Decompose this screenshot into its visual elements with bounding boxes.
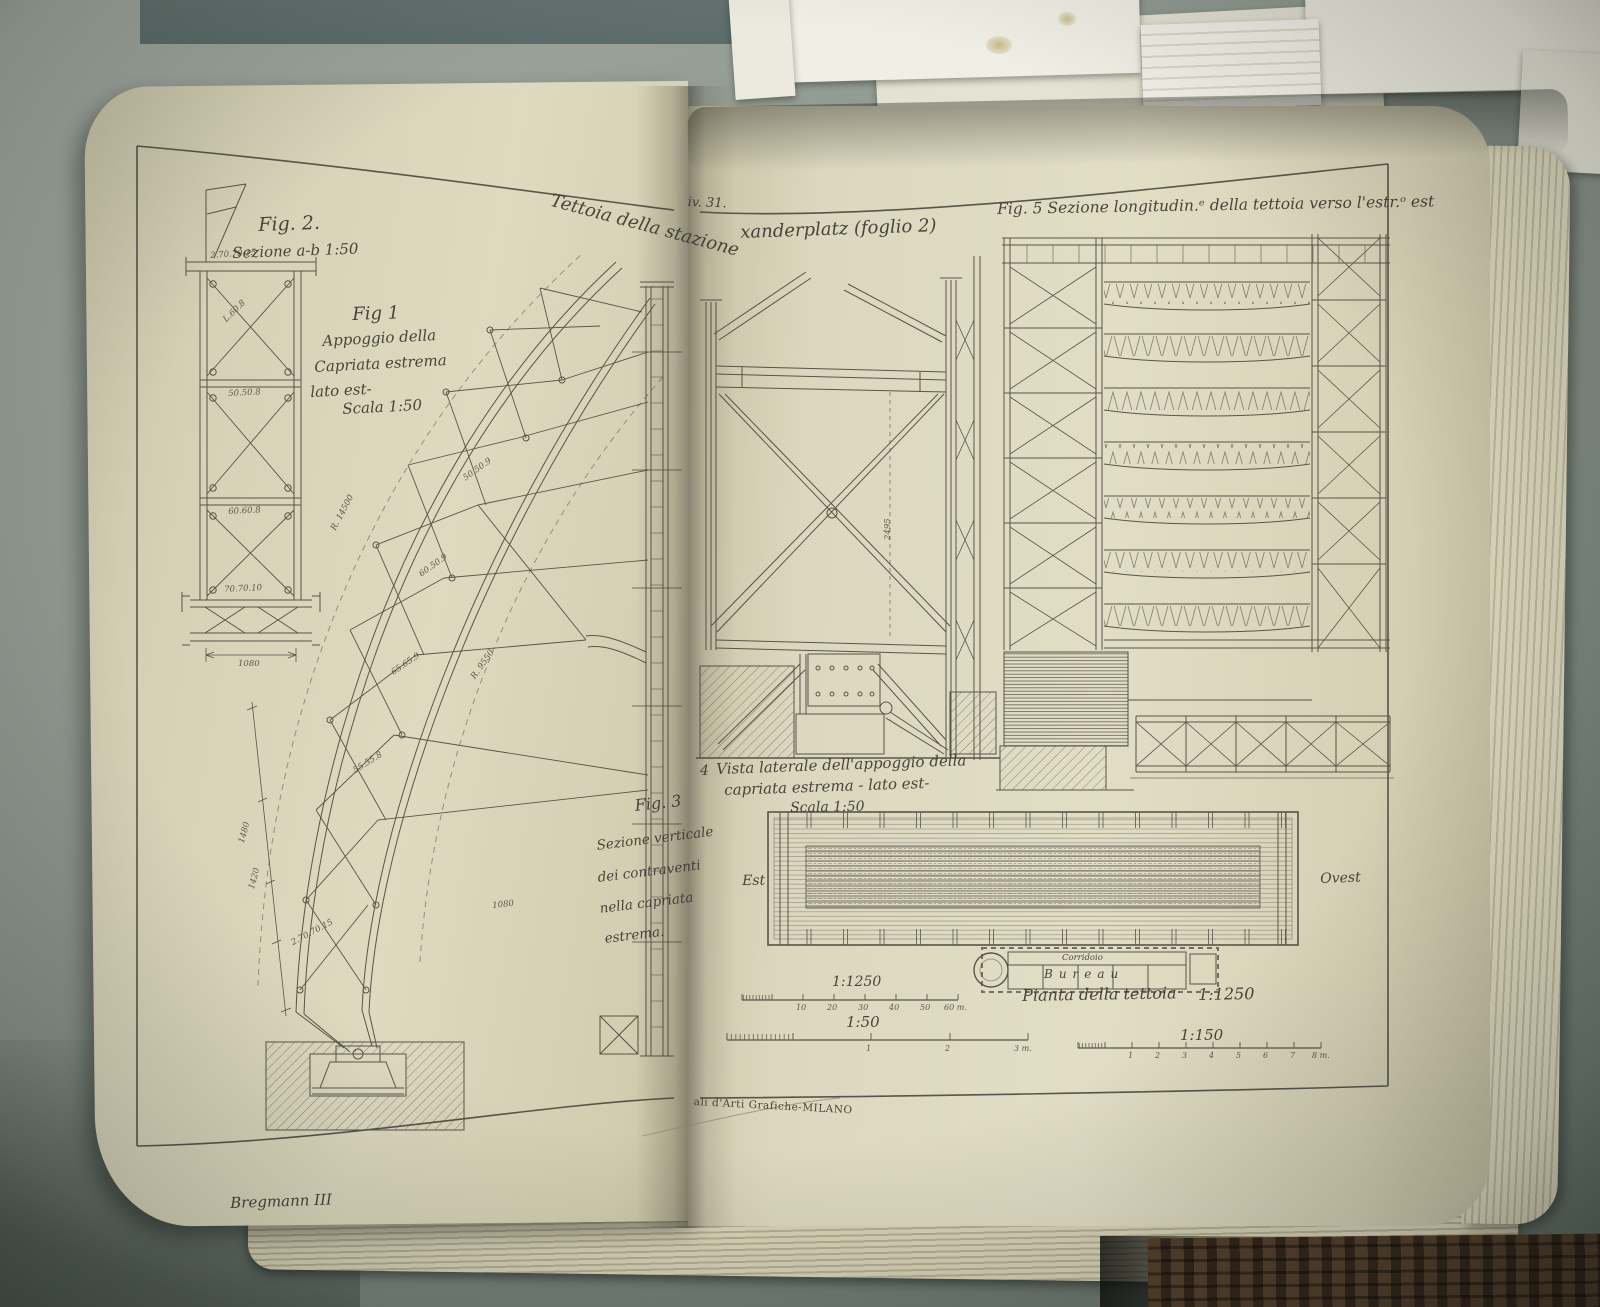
plate-title-right: xanderplatz (foglio 2) xyxy=(740,217,937,242)
fig1-caption-line3: lato est- xyxy=(310,382,372,400)
tick-label: 3 m. xyxy=(1014,1045,1032,1053)
fig3-caption-line4: estrema. xyxy=(604,926,665,947)
fig3-caption-line3: nella capriata xyxy=(599,892,694,917)
fig3-caption-line1: Sezione verticale xyxy=(596,826,714,854)
dim-label: 70.70.10 xyxy=(224,584,262,594)
plan-caption: Pianta della tettoia xyxy=(1022,985,1177,1004)
plate-labels: iv. 31. Tettoia della stazione xanderpla… xyxy=(0,0,1600,1307)
tick-label: 5 xyxy=(1236,1052,1241,1060)
plan-west-label: Ovest xyxy=(1320,871,1361,886)
tick-label: 7 xyxy=(1290,1052,1295,1060)
scalebar-1250-title: 1:1250 xyxy=(832,975,881,989)
dim-label: 60.60.8 xyxy=(228,506,261,516)
fig4-label: 4 xyxy=(700,764,709,778)
fig4-caption-line3: Scala 1:50 xyxy=(790,800,865,815)
dim-label: 1480 xyxy=(238,821,252,844)
tick-label: 3 xyxy=(1182,1052,1187,1060)
tick-label: 1 xyxy=(866,1045,871,1053)
tick-label: 8 m. xyxy=(1312,1052,1330,1060)
plan-east-label: Est xyxy=(742,874,765,888)
dim-label: 2495 xyxy=(884,518,893,540)
dim-label: 1080 xyxy=(238,660,260,669)
tick-label: 10 xyxy=(796,1004,806,1012)
tick-label: 1 xyxy=(1128,1052,1133,1060)
fig4-caption-line1: Vista laterale dell'appoggio della xyxy=(716,753,967,777)
tick-label: 50 xyxy=(920,1004,930,1012)
dim-label: 2.70.70.15 xyxy=(290,918,335,947)
fig1-label: Fig 1 xyxy=(352,304,400,324)
dim-label: 50.50.9 xyxy=(462,457,493,483)
fig4-caption-line2: capriata estrema - lato est- xyxy=(724,776,930,798)
dim-label: 1420 xyxy=(248,867,262,890)
dim-label: 55.55.8 xyxy=(352,751,384,775)
scalebar-150-title: 1:150 xyxy=(1180,1028,1223,1043)
dim-label: L.60.8 xyxy=(222,299,248,324)
dim-label: R. 14500 xyxy=(330,494,356,532)
tick-label: 20 xyxy=(827,1004,837,1012)
plate-signature: Bregmann III xyxy=(230,1192,332,1211)
plate-number: iv. 31. xyxy=(688,196,727,210)
fig2-label: Fig. 2. xyxy=(258,214,320,235)
dim-label: R. 9550 xyxy=(470,649,496,681)
fig3-caption-line2: dei contraventi xyxy=(597,859,701,885)
plan-corridor-label: Corridoio xyxy=(1062,954,1103,963)
fig3-label: Fig. 3 xyxy=(634,793,682,814)
dim-label: 50.50.8 xyxy=(228,388,261,398)
dim-label: 65.65.9 xyxy=(390,652,422,677)
fig1-caption-line4: Scala 1:50 xyxy=(342,398,422,417)
tick-label: 40 xyxy=(889,1004,899,1012)
dim-label: 60.50.9 xyxy=(418,553,449,579)
tick-label: 6 xyxy=(1263,1052,1268,1060)
plan-scale: 1:1250 xyxy=(1198,986,1255,1003)
tick-label: 4 xyxy=(1209,1052,1214,1060)
printer-credit: ali d'Arti Grafiche-MILANO xyxy=(693,1097,852,1116)
tick-label: 2 xyxy=(945,1045,950,1053)
tick-label: 30 xyxy=(858,1004,868,1012)
book-photograph: iv. 31. Tettoia della stazione xanderpla… xyxy=(0,0,1600,1307)
fig5-caption: Fig. 5 Sezione longitudin.ᵉ della tettoi… xyxy=(997,194,1434,217)
tick-label: 2 xyxy=(1155,1052,1160,1060)
fig1-caption-line1: Appoggio della xyxy=(322,328,437,349)
plan-office-label: Bureau xyxy=(1044,968,1124,980)
dim-label: 1080 xyxy=(492,900,514,911)
scalebar-50-title: 1:50 xyxy=(846,1015,880,1030)
fig1-caption-line2: Capriata estrema xyxy=(314,353,447,375)
tick-label: 60 m. xyxy=(944,1004,967,1012)
